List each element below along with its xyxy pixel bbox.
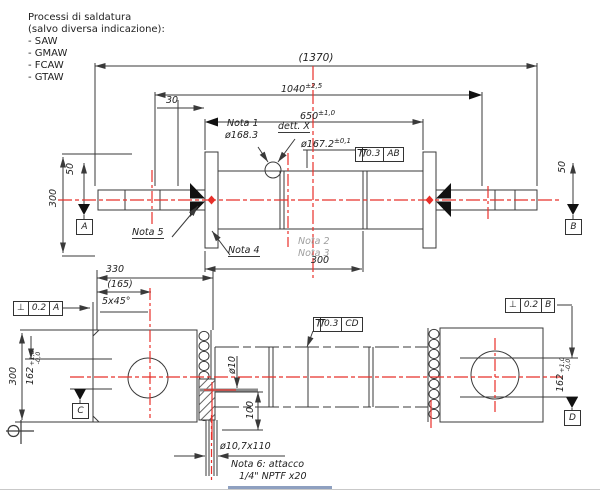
fcf-total-runout-mid: 0.3 CD [313, 317, 363, 332]
dim-1040: 1040±2,5 [281, 81, 322, 95]
dim-300-flange-left: 300 [48, 183, 60, 213]
dim-overall-1370: (1370) [286, 53, 346, 64]
detail-x-label: dett. X [278, 121, 310, 133]
fcf-total-runout-top: 0.3 AB [355, 147, 404, 162]
welding-process-subtitle: (salvo diversa indicazione): [28, 24, 165, 36]
dim-330: 330 [95, 264, 135, 275]
right-end-block [440, 328, 543, 422]
fcf-datum: A [49, 302, 62, 315]
nota4-label: Nota 4 [228, 245, 260, 257]
welding-process-title: Processi di saldatura [28, 12, 131, 24]
dim-300-bottom-left: 300 [8, 361, 20, 391]
datum-b-box: B [565, 219, 582, 235]
dim-dia107: ø10,7x110 [220, 441, 271, 452]
nota2-label: Nota 2 [298, 236, 330, 247]
fcf-mid-leader [307, 331, 313, 347]
perpendicularity-icon: ⊥ [14, 302, 28, 315]
fcf-datum: B [541, 299, 554, 312]
welding-process-item: - GTAW [28, 72, 64, 84]
perpendicularity-icon: ⊥ [506, 299, 520, 312]
dim-100: 100 [245, 395, 257, 425]
dim-30: 30 [166, 95, 178, 106]
datum-a-box: A [76, 219, 93, 235]
fcf-tolerance: 0.2 [520, 299, 541, 312]
dim-50-left: 50 [65, 154, 77, 184]
left-end-block [93, 330, 197, 422]
dim-650: 650±1,0 [300, 108, 335, 122]
drawing-sheet: Processi di saldatura (salvo diversa ind… [0, 0, 600, 490]
fcf-tolerance: 0.2 [28, 302, 49, 315]
section-hatch [199, 379, 215, 420]
fcf-datum: CD [341, 318, 361, 331]
nota6-line2: 1/4" NPTF x20 [239, 471, 307, 482]
dim-50-right: 50 [557, 152, 569, 182]
dim-300-mid: 300 [300, 255, 340, 266]
fcf-perpendicularity-left: ⊥ 0.2 A [13, 301, 63, 316]
dim-162-left: 162+1,0-0,0 [25, 351, 37, 385]
datum-d-box: D [564, 410, 581, 426]
datum-c-box: C [72, 403, 89, 419]
right-weld-seam [428, 328, 440, 422]
nota5-label: Nota 5 [132, 227, 164, 239]
dia-168-label: ø168.3 [225, 130, 258, 141]
dim-dia10: ø10 [227, 350, 239, 380]
dim-162-right: 162+1,0-0,0 [555, 358, 567, 392]
bottom-view-geometry [15, 270, 578, 476]
projection-symbol [6, 420, 34, 444]
dim-165: (165) [100, 279, 140, 290]
welding-process-item: - FCAW [28, 60, 64, 72]
nota5-leader [172, 206, 198, 237]
dett-x-leader [278, 139, 295, 162]
dia-167-label: ø167.2±0,1 [301, 136, 351, 150]
roller-body [218, 171, 423, 229]
nota1-label: Nota 1 [227, 118, 259, 129]
welding-process-item: - SAW [28, 36, 58, 48]
nota1-leader [258, 147, 268, 162]
welding-process-item: - GMAW [28, 48, 67, 60]
chamfer-label: 5x45° [102, 296, 131, 307]
fcf-datum: AB [383, 148, 402, 161]
fcf-perpendicularity-right: ⊥ 0.2 B [505, 298, 555, 313]
nota6-line1: Nota 6: attacco [231, 459, 304, 470]
